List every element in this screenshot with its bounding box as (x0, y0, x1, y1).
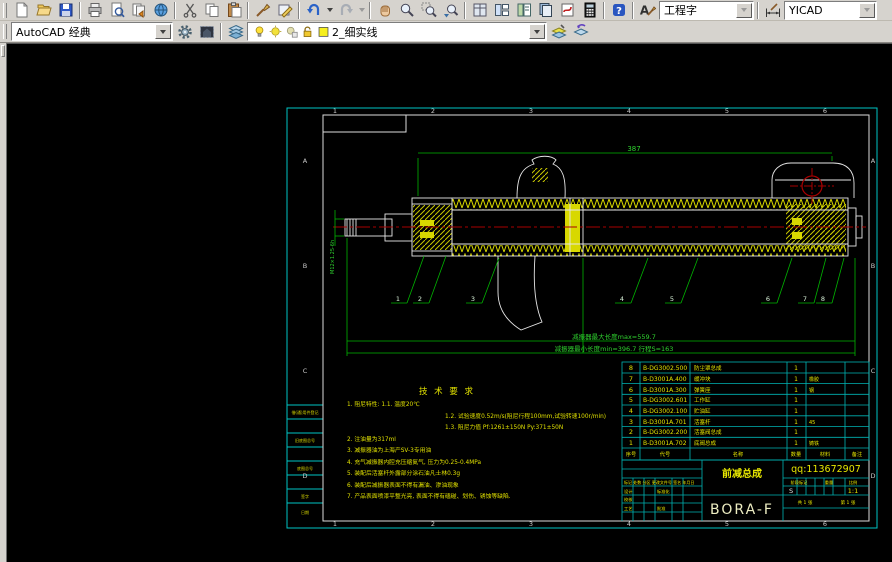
text-style-combobox[interactable]: 工程字 (659, 1, 754, 20)
workspace-lock-icon (199, 24, 215, 40)
zoom-previous-button[interactable] (440, 1, 461, 19)
layer-on-toggle[interactable] (252, 25, 266, 39)
undo-dropdown[interactable] (325, 1, 334, 19)
save-button[interactable] (55, 1, 76, 19)
properties-icon (472, 2, 488, 18)
print-preview-icon (109, 2, 125, 18)
open-folder-icon (36, 2, 52, 18)
magnifier-icon (399, 2, 415, 18)
text-style-button[interactable]: A (637, 1, 658, 19)
toolbar-separator (632, 2, 634, 19)
save-floppy-icon (58, 2, 74, 18)
zoom-realtime-button[interactable] (396, 1, 417, 19)
toolbar-grip[interactable] (3, 3, 7, 18)
publish-button[interactable] (128, 1, 149, 19)
my-workspace-button[interactable] (196, 23, 217, 41)
redo-arrow-icon (338, 2, 354, 18)
publish-icon (131, 2, 147, 18)
redo-dropdown[interactable] (357, 1, 366, 19)
design-center-button[interactable] (491, 1, 512, 19)
chevron-down-icon[interactable] (736, 3, 752, 18)
lightbulb-icon (253, 25, 266, 38)
toolbar-separator (464, 2, 466, 19)
color-swatch-icon (317, 25, 330, 38)
scissors-icon (182, 2, 198, 18)
copy-icon (204, 2, 220, 18)
autocad-window: { "app": {"canvas_bg": "#000000", "toolb… (0, 0, 892, 562)
markup-set-icon (560, 2, 576, 18)
help-icon: ? (611, 2, 627, 18)
layer-manager-button[interactable] (225, 23, 246, 41)
layer-current-icon (551, 24, 567, 40)
layer-combobox[interactable]: 2_细实线 (247, 22, 547, 41)
dim-style-icon (765, 2, 781, 18)
layers-icon (228, 24, 244, 40)
chevron-down-icon[interactable] (859, 3, 875, 18)
cut-button[interactable] (179, 1, 200, 19)
globe-icon (153, 2, 169, 18)
sun-icon (269, 25, 282, 38)
workspace-value: AutoCAD 经典 (16, 24, 153, 40)
sun-sheet-icon (285, 25, 298, 38)
calculator-icon (582, 2, 598, 18)
open-button[interactable] (33, 1, 54, 19)
toolbar-separator (603, 2, 605, 19)
zoom-window-icon (421, 2, 437, 18)
layer-previous-button[interactable] (570, 23, 591, 41)
toolbar-separator (369, 2, 371, 19)
markup-set-button[interactable] (557, 1, 578, 19)
undo-button[interactable] (303, 1, 324, 19)
new-button[interactable] (11, 1, 32, 19)
dock-grip[interactable] (1, 45, 5, 57)
workspace-settings-button[interactable] (174, 23, 195, 41)
gear-icon (177, 24, 193, 40)
svg-text:A: A (640, 4, 650, 18)
dim-style-combobox[interactable]: YICAD (784, 1, 877, 20)
toolbar-separator (174, 2, 176, 19)
pan-button[interactable] (374, 1, 395, 19)
brush-icon (255, 2, 271, 18)
redo-button[interactable] (335, 1, 356, 19)
chevron-down-icon[interactable] (155, 24, 171, 39)
layer-vp-freeze-toggle[interactable] (284, 25, 298, 39)
zoom-previous-icon (443, 2, 459, 18)
make-object-layer-current-button[interactable] (548, 23, 569, 41)
tool-palettes-button[interactable] (513, 1, 534, 19)
toolbar-separator (79, 2, 81, 19)
toolbar-separator (298, 2, 300, 19)
clipboard-icon (226, 2, 242, 18)
match-properties-button[interactable] (252, 1, 273, 19)
toolbar-separator (247, 2, 249, 19)
toolbar-grip[interactable] (3, 24, 7, 39)
standard-toolbar: ? A 工程字 YICAD (0, 0, 892, 21)
layer-previous-icon (573, 24, 589, 40)
layer-freeze-toggle[interactable] (268, 25, 282, 39)
pencil-icon (277, 2, 293, 18)
layer-lock-toggle[interactable] (300, 25, 314, 39)
text-style-value: 工程字 (664, 2, 734, 18)
workspace-combobox[interactable]: AutoCAD 经典 (11, 22, 173, 41)
hatch-edit-button[interactable] (274, 1, 295, 19)
zoom-window-button[interactable] (418, 1, 439, 19)
properties-button[interactable] (469, 1, 490, 19)
layer-value: 2_细实线 (332, 24, 527, 40)
text-style-icon: A (640, 2, 656, 18)
sheet-set-button[interactable] (535, 1, 556, 19)
chevron-down-icon[interactable] (529, 24, 545, 39)
toolbar-separator (757, 2, 759, 19)
drawing-canvas[interactable] (7, 43, 892, 562)
new-file-icon (14, 2, 30, 18)
pan-hand-icon (377, 2, 393, 18)
sheet-set-icon (538, 2, 554, 18)
dim-style-button[interactable] (762, 1, 783, 19)
paste-button[interactable] (223, 1, 244, 19)
undo-arrow-icon (306, 2, 322, 18)
plot-preview-button[interactable] (106, 1, 127, 19)
copy-button[interactable] (201, 1, 222, 19)
svg-text:?: ? (616, 6, 622, 17)
printer-icon (87, 2, 103, 18)
help-button[interactable]: ? (608, 1, 629, 19)
dim-style-value: YICAD (789, 4, 857, 17)
padlock-icon (301, 25, 314, 38)
design-center-icon (494, 2, 510, 18)
toolbar-separator (220, 23, 222, 40)
workspace-layers-toolbar: AutoCAD 经典 2_细实线 (0, 21, 892, 43)
plot-button[interactable] (84, 1, 105, 19)
layer-color-swatch[interactable] (316, 25, 330, 39)
dwf-button[interactable] (150, 1, 171, 19)
left-dock-strip (0, 43, 7, 562)
quick-calc-button[interactable] (579, 1, 600, 19)
tool-palettes-icon (516, 2, 532, 18)
